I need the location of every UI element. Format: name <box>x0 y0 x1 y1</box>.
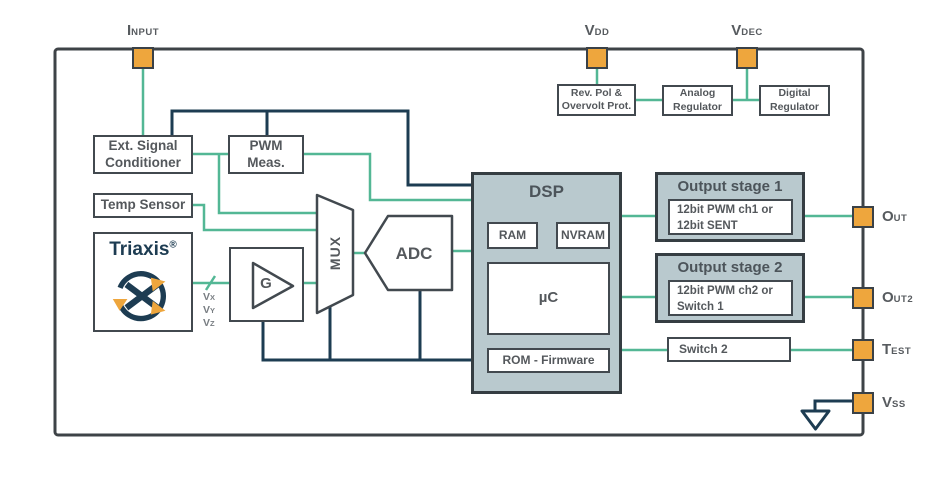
block-gain: G <box>229 247 304 322</box>
block-nvram: NVRAM <box>556 222 610 249</box>
pin-label-vdd: VDD <box>562 22 632 39</box>
block-pwm-meas: PWM Meas. <box>228 135 304 174</box>
block-ram: RAM <box>487 222 538 249</box>
block-diagram: INPUT VDD VDEC OUT OUT2 TEST VSS Rev. Po… <box>0 0 935 488</box>
triaxis-title: Triaxis® <box>109 238 177 262</box>
mux-label: MUX <box>327 223 343 283</box>
pin-label-test: TEST <box>882 341 911 358</box>
pin-vdec <box>736 47 758 69</box>
block-analog-regulator: Analog Regulator <box>662 85 733 116</box>
pin-input <box>132 47 154 69</box>
pin-test <box>852 339 874 361</box>
wire-pwm-to-dsp <box>304 154 471 200</box>
block-temp-sensor: Temp Sensor <box>93 193 193 218</box>
pin-label-out2: OUT2 <box>882 289 913 306</box>
pin-out2 <box>852 287 874 309</box>
signal-label-vx: VX <box>203 291 215 303</box>
pin-label-input: INPUT <box>108 22 178 39</box>
pin-vss <box>852 392 874 414</box>
block-digital-regulator: Digital Regulator <box>759 85 830 116</box>
output-stage-1-title: Output stage 1 <box>677 178 782 197</box>
block-rev-pol-overvolt: Rev. Pol & Overvolt Prot. <box>557 84 636 116</box>
wire-temp-to-mux <box>193 205 317 230</box>
output-stage-1-mode: 12bit PWM ch1 or 12bit SENT <box>668 199 793 235</box>
block-switch2: Switch 2 <box>667 337 791 362</box>
output-stage-2-mode: 12bit PWM ch2 or Switch 1 <box>668 280 793 316</box>
gain-label: G <box>253 275 279 294</box>
wire-bottom-bus <box>263 321 471 360</box>
ground-symbol-icon <box>802 411 829 429</box>
block-dsp: DSP RAM NVRAM µC ROM - Firmware <box>471 172 622 394</box>
block-triaxis: Triaxis® <box>93 232 193 332</box>
signal-label-vy: VY <box>203 304 215 316</box>
triaxis-logo-icon <box>96 262 190 330</box>
output-stage-2-title: Output stage 2 <box>677 259 782 278</box>
pin-label-vss: VSS <box>882 394 906 411</box>
pin-label-out: OUT <box>882 208 907 225</box>
wire-ctrl-bus <box>172 111 471 185</box>
block-uc: µC <box>487 262 610 335</box>
signal-label-vz: VZ <box>203 317 215 329</box>
pin-out <box>852 206 874 228</box>
block-output-stage-2: Output stage 2 12bit PWM ch2 or Switch 1 <box>655 253 805 323</box>
block-rom-firmware: ROM - Firmware <box>487 348 610 373</box>
block-ext-signal-conditioner: Ext. Signal Conditioner <box>93 135 193 174</box>
adc-label: ADC <box>384 244 444 264</box>
pin-label-vdec: VDEC <box>712 22 782 39</box>
dsp-title: DSP <box>529 181 564 202</box>
block-output-stage-1: Output stage 1 12bit PWM ch1 or 12bit SE… <box>655 172 805 242</box>
pin-vdd <box>586 47 608 69</box>
